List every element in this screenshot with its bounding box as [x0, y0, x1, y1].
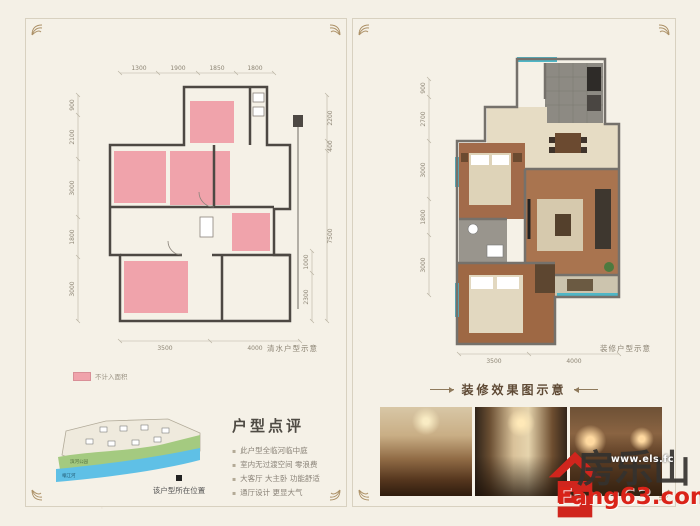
svg-text:4000: 4000	[247, 345, 262, 352]
svg-text:7500: 7500	[327, 228, 334, 243]
river-label: 岷江河	[62, 472, 76, 479]
review-bullet-text: 此户型全临河临中庭	[240, 444, 308, 458]
furnished-plan-caption: 装修户型示意	[600, 343, 651, 354]
svg-text:2200: 2200	[327, 110, 334, 125]
svg-text:1800: 1800	[69, 229, 76, 244]
svg-text:3000: 3000	[69, 281, 76, 296]
bullet-icon	[232, 472, 236, 486]
svg-text:3500: 3500	[157, 345, 172, 352]
review-bullet-text: 大客厅 大主卧 功能舒适	[240, 472, 320, 486]
location-map: 滨河公园 岷江河 该户型所在位置	[48, 417, 243, 503]
review-title: 户型点评	[232, 415, 342, 436]
logo-url-overlay: www.els.fc	[611, 454, 674, 465]
svg-text:1900: 1900	[170, 65, 185, 72]
unit-location-marker	[176, 475, 182, 481]
heading-ornament-left-icon	[430, 389, 454, 390]
park-label: 滨河公园	[70, 458, 88, 465]
review-list: 此户型全临河临中庭 室内无过渡空间 零浪费 大客厅 大主卧 功能舒适 通厅设计 …	[232, 444, 342, 500]
left-panel: 1300 1900 1850 1800 900 2100 3000 1800 3…	[25, 18, 347, 507]
photo-living-room-1[interactable]	[380, 407, 472, 496]
svg-text:3000: 3000	[420, 257, 427, 272]
furnished-floorplan: 900 2700 3000 1800 3000 3500 4000	[417, 49, 657, 374]
svg-text:900: 900	[69, 99, 76, 111]
svg-text:2700: 2700	[420, 111, 427, 126]
corner-flourish-icon	[657, 23, 671, 37]
svg-text:1800: 1800	[247, 65, 262, 72]
review-bullet-text: 通厅设计 更显大气	[240, 486, 302, 500]
bullet-icon	[232, 444, 236, 458]
review-bullet-text: 室内无过渡空间 零浪费	[240, 458, 317, 472]
review-bullet: 通厅设计 更显大气	[232, 486, 342, 500]
review-bullet: 室内无过渡空间 零浪费	[232, 458, 342, 472]
svg-text:400: 400	[327, 140, 334, 152]
review-bullet: 大客厅 大主卧 功能舒适	[232, 472, 342, 486]
bullet-icon	[232, 486, 236, 500]
logo-site-url: Fang63.com	[557, 484, 700, 510]
corner-flourish-icon	[357, 488, 371, 502]
svg-text:3000: 3000	[420, 162, 427, 177]
svg-text:1800: 1800	[420, 209, 427, 224]
review-bullet: 此户型全临河临中庭	[232, 444, 342, 458]
svg-text:1850: 1850	[209, 65, 224, 72]
gallery-title: 装修效果图示意	[461, 381, 566, 398]
corner-flourish-icon	[30, 488, 44, 502]
elevator-shaft	[293, 115, 303, 309]
gallery-heading: 装修效果图示意	[353, 381, 675, 398]
bullet-icon	[232, 458, 236, 472]
svg-text:2100: 2100	[69, 129, 76, 144]
heading-ornament-right-icon	[574, 389, 598, 390]
svg-text:3500: 3500	[486, 358, 501, 365]
svg-text:900: 900	[420, 82, 427, 94]
svg-text:3000: 3000	[69, 180, 76, 195]
corner-flourish-icon	[30, 23, 44, 37]
site-logo[interactable]: 房乐山 www.els.fc Fang63.com	[545, 436, 700, 526]
svg-text:1300: 1300	[131, 65, 146, 72]
corner-flourish-icon	[357, 23, 371, 37]
legend-label: 不计入面积	[95, 371, 128, 381]
right-panel: 900 2700 3000 1800 3000 3500 4000	[352, 18, 676, 507]
unit-review: 户型点评 此户型全临河临中庭 室内无过渡空间 零浪费 大客厅 大主卧 功能舒适 …	[232, 415, 342, 500]
marker-caption: 该户型所在位置	[153, 485, 206, 495]
svg-text:2300: 2300	[303, 289, 310, 304]
plan-legend: 不计入面积	[73, 371, 128, 381]
legend-swatch	[73, 372, 91, 381]
corner-flourish-icon	[328, 23, 342, 37]
bare-plan-caption: 清水户型示意	[267, 343, 318, 354]
svg-text:1000: 1000	[303, 254, 310, 269]
bare-floorplan: 1300 1900 1850 1800 900 2100 3000 1800 3…	[62, 59, 337, 379]
svg-text:4000: 4000	[566, 358, 581, 365]
